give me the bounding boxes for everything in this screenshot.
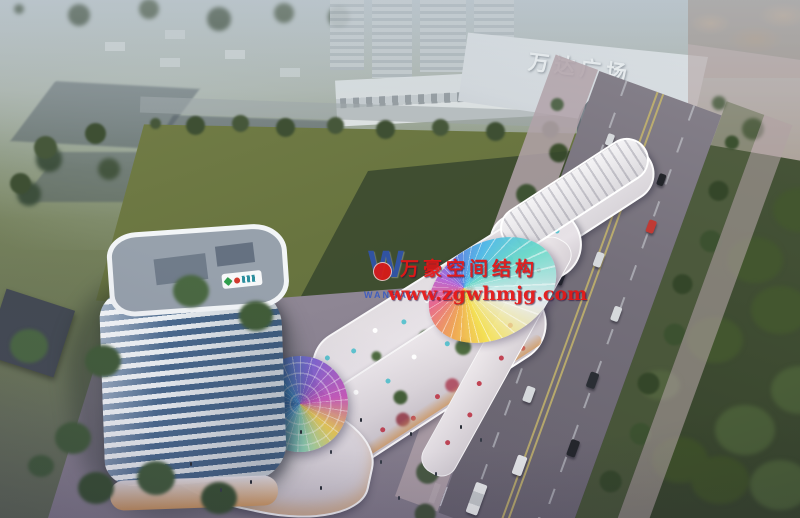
watermark-url: www.zgwhmjg.com	[388, 283, 558, 305]
bus	[465, 482, 487, 516]
terrace-umbrellas	[324, 354, 331, 361]
logo-text-marks	[242, 275, 257, 283]
logo-dot-icon	[234, 277, 241, 284]
aerial-rendering-scene: 万达广场	[0, 0, 800, 518]
roof-equipment	[154, 253, 209, 285]
tower-roof	[105, 222, 290, 318]
foreground-trees	[28, 455, 54, 477]
background-sheds	[105, 42, 125, 51]
apartment-tower	[420, 0, 466, 72]
tower-retail-base	[110, 475, 279, 511]
watermark-text: 万豪空间结构 www.zgwhmjg.com	[388, 254, 558, 305]
sidewalk-trees	[549, 96, 566, 113]
car	[522, 385, 536, 403]
logo-diamond-icon	[224, 276, 233, 285]
field-tree-line	[150, 118, 161, 129]
office-tower	[100, 226, 295, 511]
foreground-warehouse	[0, 289, 75, 378]
watermark: W WANHAO 万豪空间结构 www.zgwhmjg.com	[360, 248, 560, 314]
watermark-title: 万豪空间结构	[388, 254, 558, 281]
apartment-tower	[372, 0, 412, 78]
car	[586, 371, 600, 389]
car	[610, 305, 623, 322]
median-trees	[723, 134, 741, 152]
apartment-tower	[330, 0, 364, 70]
plaza-people	[250, 480, 252, 484]
car	[645, 219, 657, 234]
car	[566, 439, 580, 458]
background-trees	[14, 4, 24, 14]
roof-equipment	[215, 242, 255, 266]
